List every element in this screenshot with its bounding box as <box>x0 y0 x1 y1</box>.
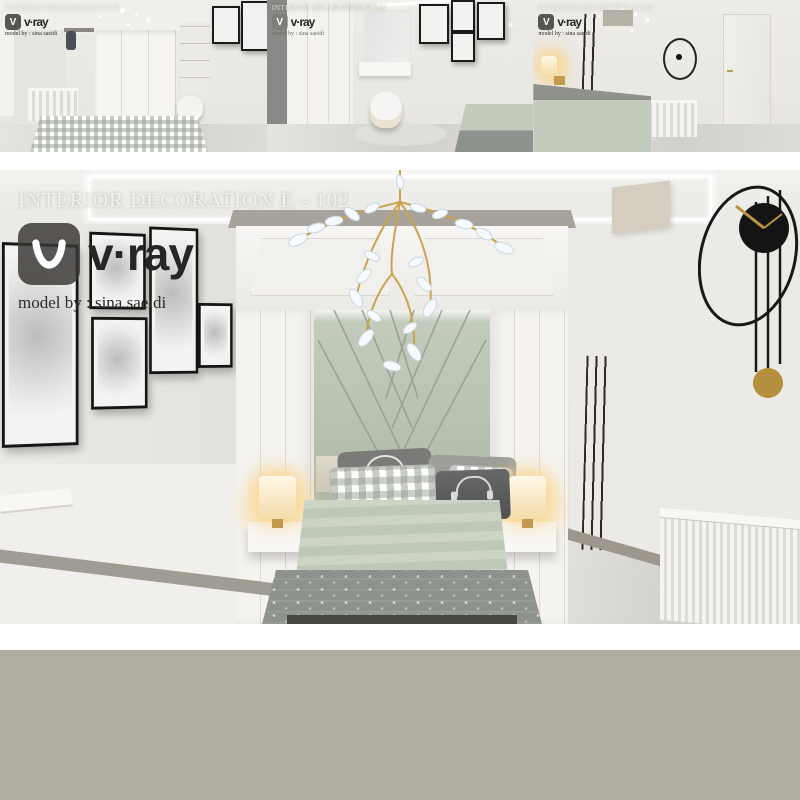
thumbnail-2: INTERIOR DECORATION E-102 V v·ray model … <box>267 0 534 152</box>
table-lamp-right <box>509 476 546 519</box>
table-lamp-left <box>259 476 296 519</box>
vray-brand: v·ray <box>291 15 315 29</box>
radiator <box>660 508 800 624</box>
gallery-frame <box>419 4 449 44</box>
watermark: INTERIOR DECORATION E-102 V v·ray model … <box>5 3 120 37</box>
foreground-wall <box>0 464 252 624</box>
vray-logo-icon <box>18 223 80 285</box>
watermark: INTERIOR DECORATION E-102 V v·ray model … <box>538 3 653 37</box>
vray-logo-glyph: V <box>276 17 283 28</box>
vray-brand: v·ray <box>88 227 193 281</box>
vray-logo-glyph: V <box>10 17 17 28</box>
thumbnail-3: INTERIOR DECORATION E-102 V v·ray model … <box>533 0 800 152</box>
coat-rack-icon <box>581 356 610 551</box>
render-title: INTERIOR DECORATION E-102 <box>5 3 120 12</box>
door <box>723 14 771 134</box>
chandelier-icon <box>268 170 530 378</box>
pouf <box>370 92 402 128</box>
door-handle <box>727 70 733 72</box>
vray-logo-glyph-icon <box>27 232 71 276</box>
vray-brand: v·ray <box>557 15 581 29</box>
bed <box>533 84 651 152</box>
rug <box>355 122 447 146</box>
vray-logo-icon: V <box>538 14 554 30</box>
gray-footer-block <box>0 650 800 800</box>
bed <box>30 116 208 152</box>
wall-panel <box>612 180 670 233</box>
render-title: INTERIOR DECORATION E-102 <box>272 3 387 12</box>
white-divider <box>0 152 800 170</box>
model-credit: model by : sina saeidi <box>538 31 653 37</box>
white-divider <box>0 624 800 650</box>
duvet <box>296 500 508 576</box>
main-render: INTERIOR DECORATION E - 102 v·ray model … <box>0 170 800 624</box>
table-lamp <box>541 56 557 76</box>
vray-logo-glyph: V <box>543 17 550 28</box>
shelf-unit <box>180 22 210 94</box>
vray-logo-icon: V <box>272 14 288 30</box>
bed <box>455 104 534 152</box>
vanity <box>359 62 411 76</box>
gallery-frame <box>451 0 475 32</box>
gallery-frame <box>451 32 475 62</box>
gallery-frame <box>212 6 240 44</box>
door <box>0 24 15 116</box>
watermark: INTERIOR DECORATION E-102 V v·ray model … <box>272 3 387 37</box>
wall-clock-icon <box>698 176 800 408</box>
thumbnail-strip: INTERIOR DECORATION E-102 V v·ray model … <box>0 0 800 152</box>
render-title: INTERIOR DECORATION E-102 <box>538 3 653 12</box>
model-credit: model by : sina saeidi <box>5 31 120 37</box>
gallery-frame <box>241 1 267 51</box>
vray-logo-icon: V <box>5 14 21 30</box>
bedspread <box>262 570 542 624</box>
chandelier-icon <box>120 8 125 13</box>
thumbnail-1: INTERIOR DECORATION E-102 V v·ray model … <box>0 0 267 152</box>
gallery-frame <box>477 2 505 40</box>
vray-brand: v·ray <box>24 15 48 29</box>
wardrobe <box>95 30 177 118</box>
radiator <box>645 100 697 137</box>
model-credit: model by : sina saeidi <box>272 31 387 37</box>
gallery-frame <box>91 317 147 410</box>
